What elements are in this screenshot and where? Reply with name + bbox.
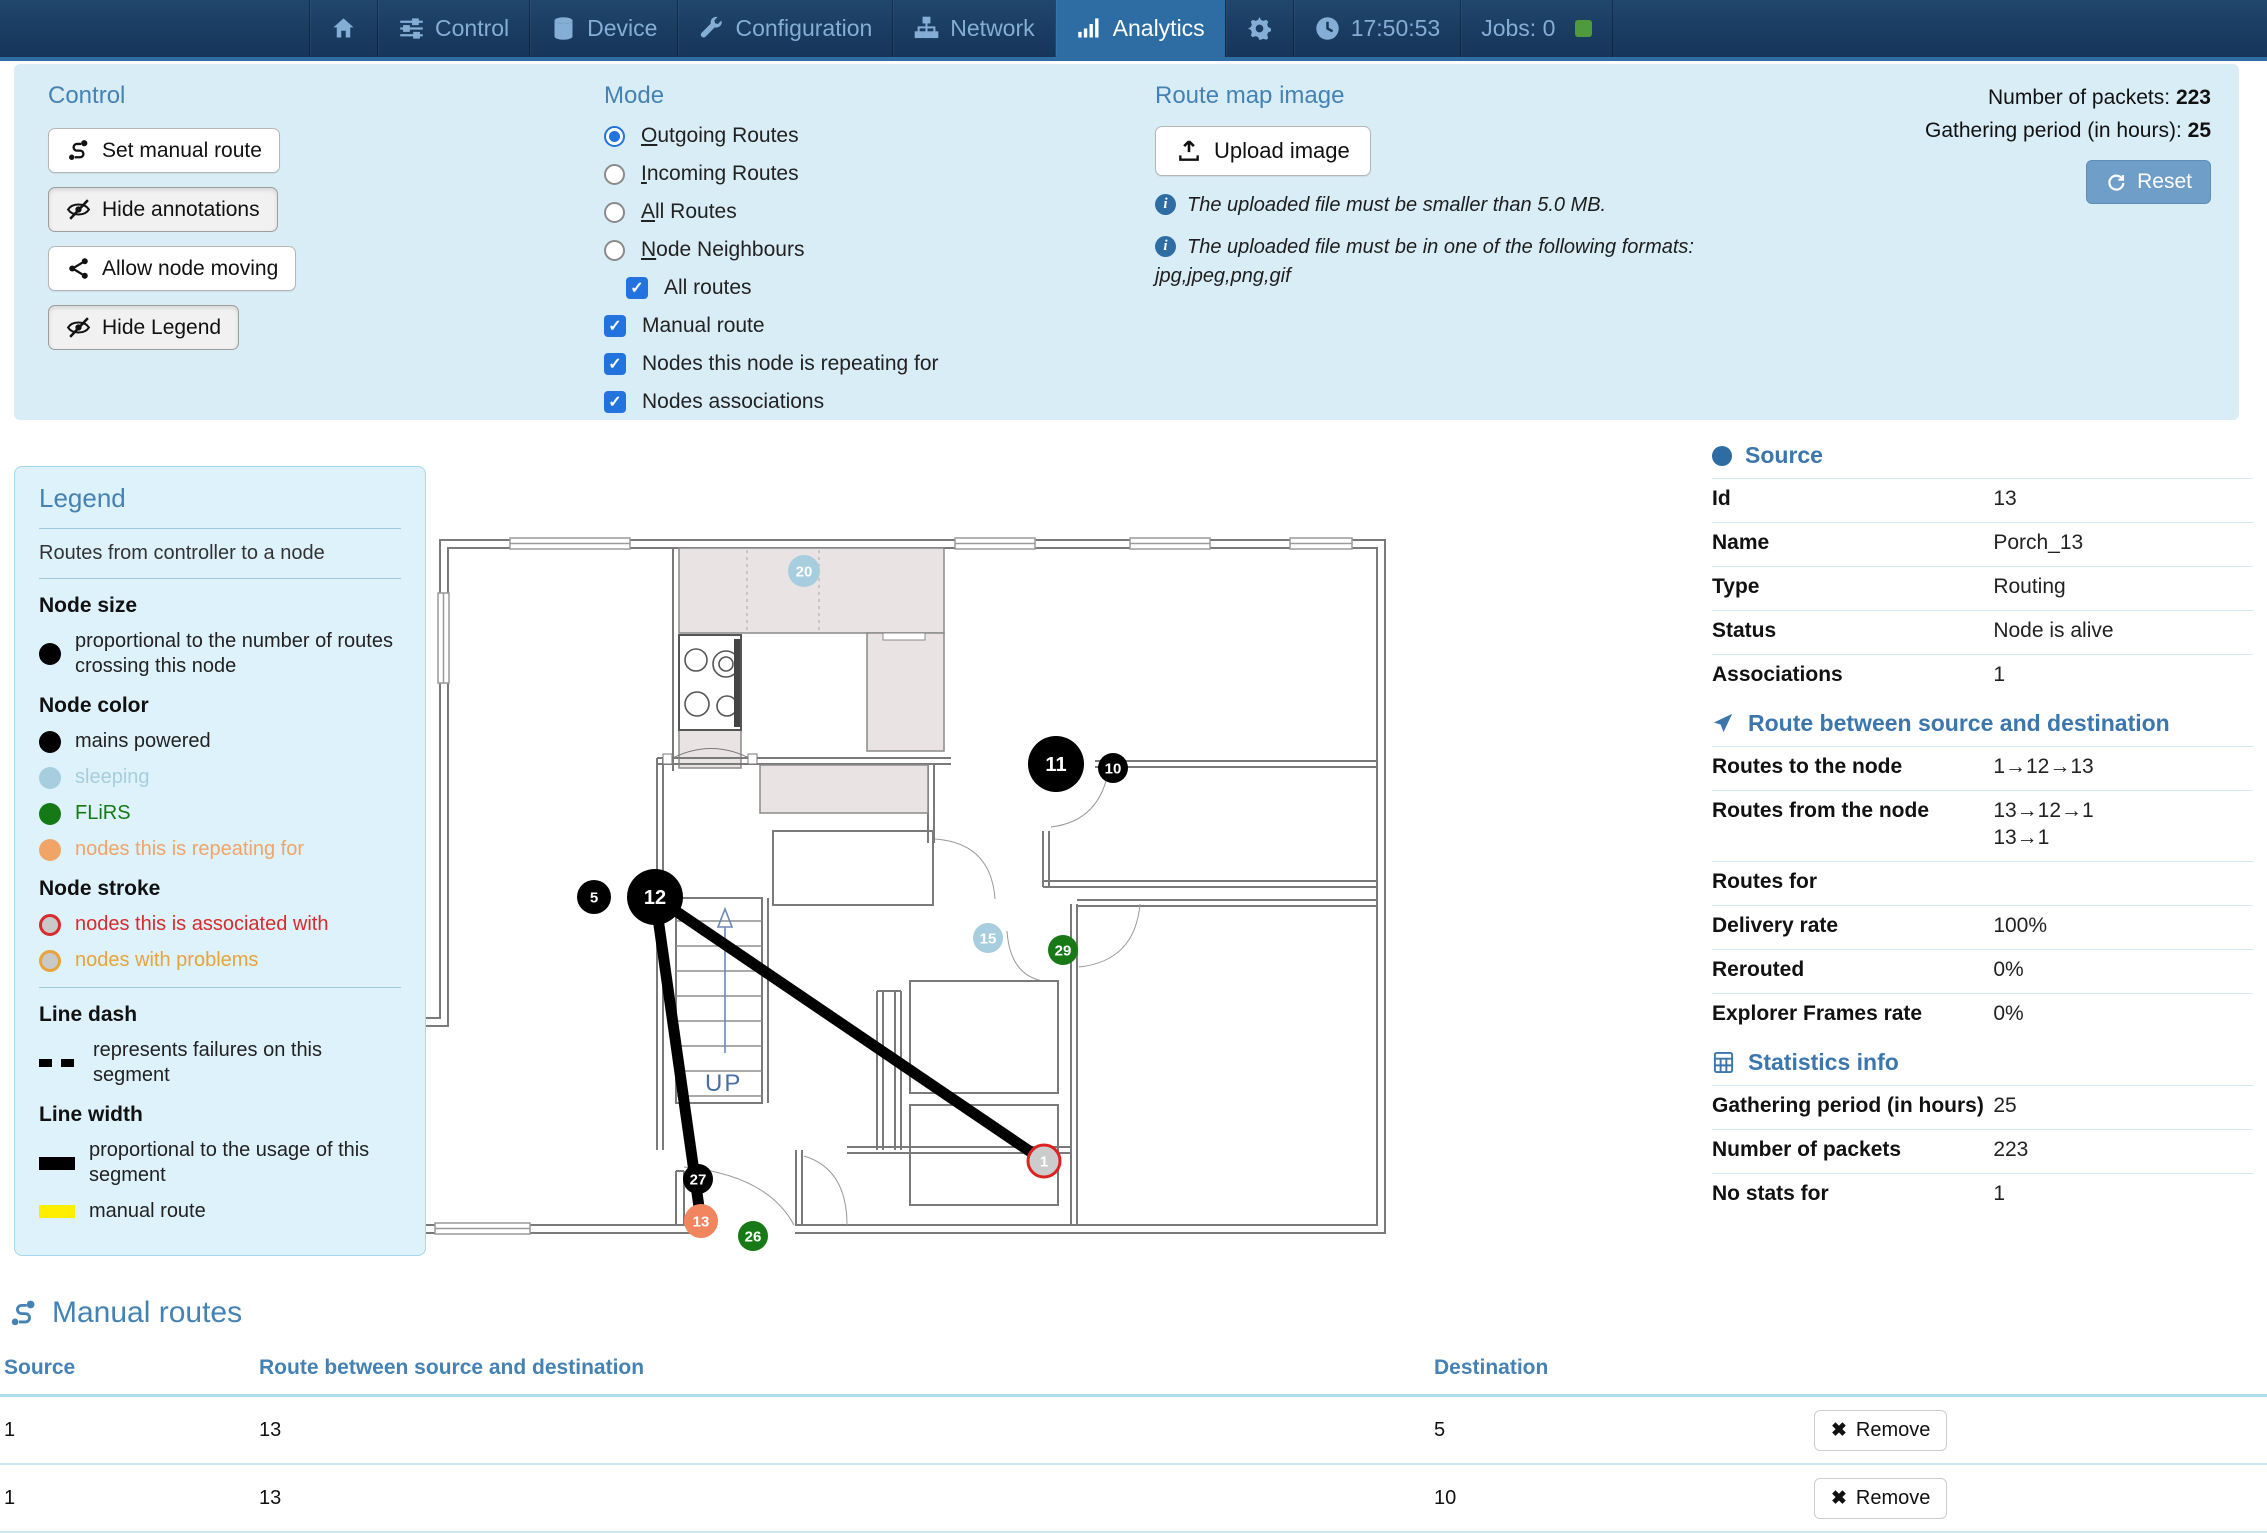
legend-sections: Node sizeproportional to the number of r… bbox=[39, 594, 401, 1224]
legend-item-sleeping: sleeping bbox=[39, 765, 401, 790]
manual-route-row: 1135✖Remove bbox=[0, 1397, 2267, 1465]
ring-swatch-icon bbox=[39, 914, 61, 936]
thick-swatch-icon bbox=[39, 1205, 75, 1218]
nav-time: 17:50:53 bbox=[1351, 15, 1441, 42]
remove-label: Remove bbox=[1856, 1419, 1930, 1442]
source-dot-icon bbox=[1712, 446, 1732, 466]
gathering-stats: Number of packets: 223 Gathering period … bbox=[1925, 86, 2211, 204]
mode-section: Mode Outgoing RoutesIncoming RoutesAll R… bbox=[604, 82, 939, 414]
info-icon: i bbox=[1155, 236, 1176, 257]
dot-swatch-icon bbox=[39, 839, 61, 861]
upload-icon bbox=[1176, 138, 1202, 164]
period-label: Gathering period (in hours): bbox=[1925, 119, 2182, 142]
radio-icon[interactable] bbox=[604, 126, 625, 147]
stairs: UP bbox=[676, 898, 768, 1103]
mode-checkbox-group: ✓All routes✓Manual route✓Nodes this node… bbox=[604, 276, 939, 414]
hide-legend-button[interactable]: Hide Legend bbox=[48, 305, 239, 350]
legend-subtitle: Routes from controller to a node bbox=[39, 529, 401, 579]
nav-tab-control[interactable]: Control bbox=[377, 0, 529, 57]
info-label: Name bbox=[1712, 531, 1993, 558]
legend-item-label: proportional to the usage of this segmen… bbox=[89, 1138, 401, 1188]
mode-radio-group: Outgoing RoutesIncoming RoutesAll Routes… bbox=[604, 124, 939, 262]
info-label: Associations bbox=[1712, 663, 1993, 690]
manual-route-row: 11310✖Remove bbox=[0, 1465, 2267, 1533]
cell-route: 13 bbox=[259, 1487, 1434, 1510]
mode-section-title: Mode bbox=[604, 82, 939, 110]
legend-item-nodes-this-is-associated-with: nodes this is associated with bbox=[39, 912, 401, 937]
mode-radio-node-neighbours[interactable]: Node Neighbours bbox=[604, 238, 939, 262]
legend-item-represents-failures-on-this-segment: represents failures on this segment bbox=[39, 1038, 401, 1088]
info-row-no-stats-for: No stats for1 bbox=[1712, 1173, 2253, 1217]
radio-icon[interactable] bbox=[604, 202, 625, 223]
checkbox-icon[interactable]: ✓ bbox=[604, 391, 626, 413]
radio-label: Node Neighbours bbox=[641, 238, 804, 262]
floor-plan: UP 20111051215292713261 bbox=[395, 513, 1400, 1245]
remove-button[interactable]: ✖Remove bbox=[1814, 1410, 1947, 1451]
map-node-label-29: 29 bbox=[1055, 942, 1072, 959]
info-row-type: TypeRouting bbox=[1712, 566, 2253, 610]
info-value: 13→12→113→1 bbox=[1993, 799, 2253, 853]
mode-radio-all-routes[interactable]: All Routes bbox=[604, 200, 939, 224]
dash-swatch-icon bbox=[39, 1058, 79, 1068]
radio-label: Outgoing Routes bbox=[641, 124, 799, 148]
mode-checkbox-nodes-associations[interactable]: ✓Nodes associations bbox=[604, 390, 939, 414]
button-label: Upload image bbox=[1214, 138, 1350, 164]
bar-chart-icon bbox=[1076, 15, 1103, 42]
wrench-icon bbox=[698, 15, 725, 42]
button-label: Hide annotations bbox=[102, 198, 260, 222]
period-value: 25 bbox=[2188, 119, 2211, 142]
legend-item-nodes-this-is-repeating-for: nodes this is repeating for bbox=[39, 837, 401, 862]
nav-tab-settings[interactable] bbox=[1225, 0, 1293, 57]
dot-swatch-icon bbox=[39, 803, 61, 825]
checkbox-label: Nodes this node is repeating for bbox=[642, 352, 939, 376]
info-value bbox=[1993, 870, 2253, 897]
jobs-status-square bbox=[1575, 20, 1592, 37]
dot-swatch-icon bbox=[39, 643, 61, 665]
info-value: 1→12→13 bbox=[1993, 755, 2253, 782]
legend-item-label: sleeping bbox=[75, 765, 150, 790]
legend-divider bbox=[39, 987, 401, 988]
info-value: Routing bbox=[1993, 575, 2253, 602]
remove-button[interactable]: ✖Remove bbox=[1814, 1478, 1947, 1519]
packets-value: 223 bbox=[2176, 86, 2211, 109]
legend-heading-line-dash: Line dash bbox=[39, 1003, 401, 1027]
packets-label: Number of packets: bbox=[1988, 86, 2170, 109]
legend-heading-line-width: Line width bbox=[39, 1103, 401, 1127]
checkbox-label: Manual route bbox=[642, 314, 765, 338]
nav-tab-label: Device bbox=[587, 15, 657, 42]
legend-item-label: mains powered bbox=[75, 729, 211, 754]
thick-swatch-icon bbox=[39, 1157, 75, 1170]
info-row-number-of-packets: Number of packets223 bbox=[1712, 1129, 2253, 1173]
radio-icon[interactable] bbox=[604, 240, 625, 261]
section-header-source: Source bbox=[1712, 442, 2253, 469]
map-node-label-26: 26 bbox=[745, 1228, 762, 1245]
legend-item-label: FLiRS bbox=[75, 801, 131, 826]
map-node-label-11: 11 bbox=[1045, 754, 1066, 776]
legend-panel: Legend Routes from controller to a node … bbox=[14, 466, 426, 1256]
stove bbox=[679, 635, 741, 730]
legend-item-label: manual route bbox=[89, 1199, 206, 1224]
nav-jobs[interactable]: Jobs: 0 bbox=[1460, 0, 1613, 57]
map-node-label-20: 20 bbox=[796, 563, 813, 580]
eye-slash-icon bbox=[66, 315, 91, 340]
info-row-routes-for: Routes for bbox=[1712, 861, 2253, 905]
section-title: Source bbox=[1745, 442, 1823, 469]
dot-swatch-icon bbox=[39, 731, 61, 753]
info-value: Porch_13 bbox=[1993, 531, 2253, 558]
upload-image-button[interactable]: Upload image bbox=[1155, 126, 1371, 176]
clock-icon bbox=[1314, 15, 1341, 42]
upload-formats-line: jpg,jpeg,png,gif bbox=[1155, 265, 1715, 288]
source-info-panel: SourceId13NamePorch_13TypeRoutingStatusN… bbox=[1712, 430, 2253, 1217]
info-label: Status bbox=[1712, 619, 1993, 646]
entry bbox=[676, 1147, 1071, 1237]
eye-slash-icon bbox=[66, 197, 91, 222]
nav-clock: 17:50:53 bbox=[1293, 0, 1461, 57]
mode-checkbox-nodes-this-node-is-repeating-for[interactable]: ✓Nodes this node is repeating for bbox=[604, 352, 939, 376]
nav-tab-label: Configuration bbox=[735, 15, 872, 42]
mode-radio-outgoing-routes[interactable]: Outgoing Routes bbox=[604, 124, 939, 148]
legend-item-label: represents failures on this segment bbox=[93, 1038, 401, 1088]
info-row-explorer-frames-rate: Explorer Frames rate0% bbox=[1712, 993, 2253, 1037]
legend-item-label: nodes with problems bbox=[75, 948, 258, 973]
mode-checkbox-all-routes[interactable]: ✓All routes bbox=[626, 276, 939, 300]
closet-shelf bbox=[760, 765, 928, 813]
oven-handle bbox=[734, 639, 740, 727]
route-icon bbox=[66, 138, 91, 163]
legend-item-flirs: FLiRS bbox=[39, 801, 401, 826]
legend-heading-node-color: Node color bbox=[39, 694, 401, 718]
nav-tab-device[interactable]: Device bbox=[529, 0, 677, 57]
cell-route: 13 bbox=[259, 1419, 1434, 1442]
control-section: Control Set manual route Hide annotation… bbox=[48, 82, 296, 350]
radio-label: All Routes bbox=[641, 200, 737, 224]
x-icon: ✖ bbox=[1831, 1487, 1847, 1510]
info-row-routes-to-the-node: Routes to the node1→12→13 bbox=[1712, 746, 2253, 790]
column-header-destination: Destination bbox=[1434, 1356, 1814, 1380]
legend-item-label: nodes this is repeating for bbox=[75, 837, 304, 862]
database-icon bbox=[550, 15, 577, 42]
ring-swatch-icon bbox=[39, 950, 61, 972]
nav-tab-label: Control bbox=[435, 15, 509, 42]
home-icon bbox=[330, 15, 357, 42]
share-icon bbox=[66, 256, 91, 281]
upload-note-formats: i The uploaded file must be in one of th… bbox=[1155, 235, 1715, 260]
button-label: Reset bbox=[2137, 170, 2192, 194]
info-value: 0% bbox=[1993, 1002, 2253, 1029]
route-map-image-title: Route map image bbox=[1155, 82, 1715, 110]
nav-tab-label: Network bbox=[950, 15, 1034, 42]
info-value: 223 bbox=[1993, 1138, 2253, 1165]
map-node-label-1: 1 bbox=[1040, 1153, 1048, 1170]
cell-destination: 10 bbox=[1434, 1487, 1814, 1510]
section-title: Route between source and destination bbox=[1748, 710, 2170, 737]
x-icon: ✖ bbox=[1831, 1419, 1847, 1442]
info-label: Rerouted bbox=[1712, 958, 1993, 985]
checkbox-icon[interactable]: ✓ bbox=[626, 277, 648, 299]
column-header-route: Route between source and destination bbox=[259, 1356, 1434, 1380]
info-label: Gathering period (in hours) bbox=[1712, 1094, 1993, 1121]
cell-actions: ✖Remove bbox=[1814, 1410, 2267, 1451]
info-row-gathering-period-in-hours: Gathering period (in hours)25 bbox=[1712, 1085, 2253, 1129]
door-arc bbox=[1007, 931, 1043, 981]
manual-routes-header: Source Route between source and destinat… bbox=[0, 1356, 2267, 1397]
analytics-control-panel: Control Set manual route Hide annotation… bbox=[14, 64, 2239, 420]
legend-heading-node-stroke: Node stroke bbox=[39, 877, 401, 901]
door-arc bbox=[935, 839, 995, 899]
info-label: Routes to the node bbox=[1712, 755, 1993, 782]
map-node-label-10: 10 bbox=[1105, 760, 1122, 777]
info-value: 0% bbox=[1993, 958, 2253, 985]
mode-checkbox-manual-route[interactable]: ✓Manual route bbox=[604, 314, 939, 338]
info-label: Type bbox=[1712, 575, 1993, 602]
checkbox-icon[interactable]: ✓ bbox=[604, 353, 626, 375]
map-node-label-13: 13 bbox=[693, 1213, 710, 1230]
section-title: Statistics info bbox=[1748, 1049, 1899, 1076]
right-walls bbox=[1043, 761, 1377, 1225]
note-text: The uploaded file must be smaller than 5… bbox=[1187, 193, 1606, 218]
radio-label: Incoming Routes bbox=[641, 162, 799, 186]
info-value: 25 bbox=[1993, 1094, 2253, 1121]
radio-icon[interactable] bbox=[604, 164, 625, 185]
map-node-label-12: 12 bbox=[644, 887, 666, 909]
cell-source: 1 bbox=[4, 1419, 259, 1442]
info-label: Delivery rate bbox=[1712, 914, 1993, 941]
map-node-label-27: 27 bbox=[690, 1171, 707, 1188]
manual-routes-rows: 1135✖Remove11310✖Remove bbox=[0, 1397, 2267, 1533]
info-value: 100% bbox=[1993, 914, 2253, 941]
dot-swatch-icon bbox=[39, 767, 61, 789]
note-text: The uploaded file must be in one of the … bbox=[1187, 235, 1694, 260]
info-row-id: Id13 bbox=[1712, 478, 2253, 522]
set-manual-route-button[interactable]: Set manual route bbox=[48, 128, 280, 173]
nav-tab-network[interactable]: Network bbox=[892, 0, 1054, 57]
route-map[interactable]: UP 20111051215292713261 bbox=[395, 513, 1400, 1245]
button-label: Hide Legend bbox=[102, 316, 221, 340]
route-icon bbox=[8, 1298, 39, 1329]
allow-node-moving-button[interactable]: Allow node moving bbox=[48, 246, 296, 291]
reset-button[interactable]: Reset bbox=[2086, 160, 2211, 204]
info-row-rerouted: Rerouted0% bbox=[1712, 949, 2253, 993]
hide-annotations-button[interactable]: Hide annotations bbox=[48, 187, 278, 232]
info-value: Node is alive bbox=[1993, 619, 2253, 646]
cell-destination: 5 bbox=[1434, 1419, 1814, 1442]
column-header-source: Source bbox=[4, 1356, 259, 1380]
location-arrow-icon bbox=[1712, 712, 1735, 735]
info-row-associations: Associations1 bbox=[1712, 654, 2253, 698]
stairs-up-label: UP bbox=[705, 1070, 742, 1097]
info-label: No stats for bbox=[1712, 1182, 1993, 1209]
legend-item-mains-powered: mains powered bbox=[39, 729, 401, 754]
route-map-image-section: Route map image Upload image i The uploa… bbox=[1155, 82, 1715, 288]
gear-icon bbox=[1246, 15, 1273, 42]
map-node-label-15: 15 bbox=[980, 930, 997, 947]
door-arc bbox=[1079, 904, 1140, 967]
legend-item-manual-route: manual route bbox=[39, 1199, 401, 1224]
nav-underline bbox=[0, 57, 2267, 61]
center-walls bbox=[657, 758, 951, 1150]
info-row-routes-from-the-node: Routes from the node13→12→113→1 bbox=[1712, 790, 2253, 861]
jobs-label: Jobs: 0 bbox=[1481, 15, 1555, 42]
period-line: Gathering period (in hours): 25 bbox=[1925, 119, 2211, 143]
calculator-icon bbox=[1712, 1051, 1735, 1074]
sitemap-icon bbox=[913, 15, 940, 42]
cell-actions: ✖Remove bbox=[1814, 1478, 2267, 1519]
info-label: Routes from the node bbox=[1712, 799, 1993, 853]
info-icon: i bbox=[1155, 194, 1176, 215]
manual-routes-title-text: Manual routes bbox=[52, 1296, 242, 1330]
refresh-icon bbox=[2105, 171, 2127, 193]
info-value: 1 bbox=[1993, 1182, 2253, 1209]
info-row-status: StatusNode is alive bbox=[1712, 610, 2253, 654]
nav-tab-home[interactable] bbox=[309, 0, 377, 57]
checkbox-label: Nodes associations bbox=[642, 390, 824, 414]
section-header-route-between-source-and-destination: Route between source and destination bbox=[1712, 710, 2253, 737]
info-label: Routes for bbox=[1712, 870, 1993, 897]
legend-item-label: proportional to the number of routes cro… bbox=[75, 629, 401, 679]
info-value: 1 bbox=[1993, 663, 2253, 690]
legend-title: Legend bbox=[39, 483, 401, 529]
upload-note-size: i The uploaded file must be smaller than… bbox=[1155, 193, 1715, 218]
cell-source: 1 bbox=[4, 1487, 259, 1510]
legend-heading-node-size: Node size bbox=[39, 594, 401, 618]
button-label: Allow node moving bbox=[102, 257, 278, 281]
top-nav: Control Device Configuration Network Ana… bbox=[0, 0, 2267, 57]
info-row-name: NamePorch_13 bbox=[1712, 522, 2253, 566]
remove-label: Remove bbox=[1856, 1487, 1930, 1510]
checkbox-icon[interactable]: ✓ bbox=[604, 315, 626, 337]
mode-radio-incoming-routes[interactable]: Incoming Routes bbox=[604, 162, 939, 186]
info-label: Explorer Frames rate bbox=[1712, 1002, 1993, 1029]
manual-routes-section: Manual routes Source Route between sourc… bbox=[0, 1296, 2267, 1533]
legend-item-proportional-to-the-number-of-routes-crossing-this-node: proportional to the number of routes cro… bbox=[39, 629, 401, 679]
info-value: 13 bbox=[1993, 487, 2253, 514]
info-label: Id bbox=[1712, 487, 1993, 514]
section-header-statistics-info: Statistics info bbox=[1712, 1049, 2253, 1076]
legend-item-proportional-to-the-usage-of-this-segment: proportional to the usage of this segmen… bbox=[39, 1138, 401, 1188]
nav-tab-analytics[interactable]: Analytics bbox=[1055, 0, 1225, 57]
nav-spacer bbox=[0, 0, 309, 57]
legend-item-nodes-with-problems: nodes with problems bbox=[39, 948, 401, 973]
control-section-title: Control bbox=[48, 82, 296, 110]
nav-tab-label: Analytics bbox=[1113, 15, 1205, 42]
dining-room bbox=[773, 831, 933, 905]
info-label: Number of packets bbox=[1712, 1138, 1993, 1165]
nav-tab-configuration[interactable]: Configuration bbox=[677, 0, 892, 57]
manual-routes-title: Manual routes bbox=[0, 1296, 2267, 1330]
sliders-icon bbox=[398, 15, 425, 42]
map-node-label-5: 5 bbox=[590, 889, 598, 906]
info-row-delivery-rate: Delivery rate100% bbox=[1712, 905, 2253, 949]
legend-item-label: nodes this is associated with bbox=[75, 912, 328, 937]
packets-line: Number of packets: 223 bbox=[1925, 86, 2211, 110]
checkbox-label: All routes bbox=[664, 276, 752, 300]
button-label: Set manual route bbox=[102, 139, 262, 163]
